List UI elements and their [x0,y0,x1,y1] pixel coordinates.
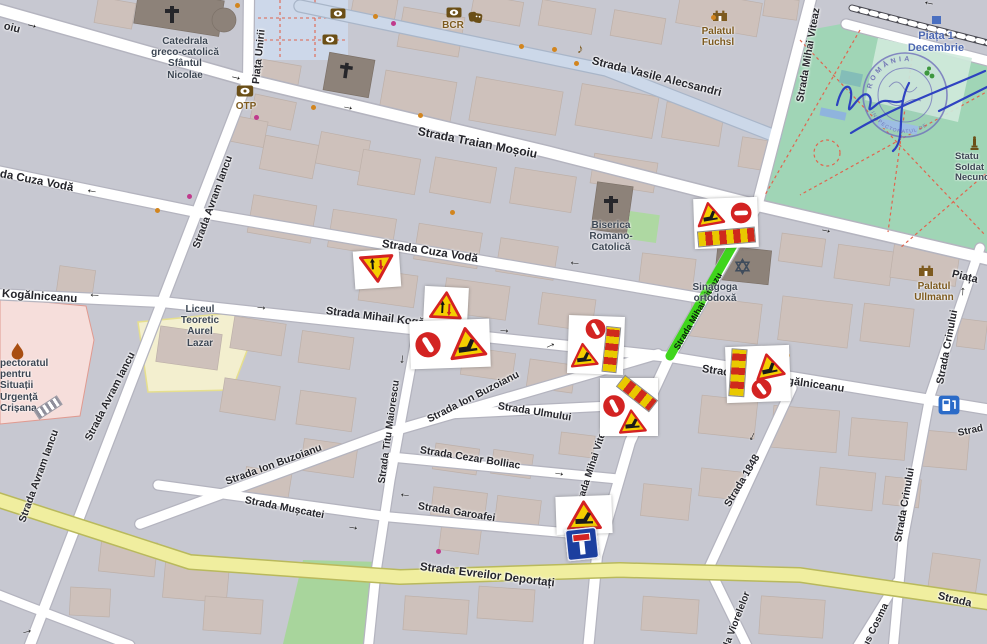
poi-dot [450,210,455,215]
one-way-arrow-icon: → [567,257,581,273]
one-way-arrow-icon: → [497,320,511,336]
poi-dot [436,549,441,554]
poi-dot [574,61,579,66]
landmark-label-otp: OTP [231,101,261,112]
poi-dot [254,115,259,120]
sign-cluster-kogalniceanu-west [423,286,469,324]
one-way-arrow-icon: → [552,463,567,480]
flame-icon [11,343,24,360]
poi-dot [552,47,557,52]
castle-icon [918,263,934,277]
stamp-seal: ROMÂNIA INSPECTORATUL DE [823,45,987,165]
church-cross-icon [609,196,613,213]
fuel-station-icon [938,395,960,415]
stripe-barrier-icon [728,348,747,397]
poi-dot [235,3,240,8]
sign-cluster-cuza-voda [353,248,402,289]
one-way-arrow-icon: → [346,517,361,534]
bank-icon [330,8,346,19]
church-cross-icon [170,6,174,23]
poi-dot [711,15,716,20]
no-entry-sign-icon [411,327,446,362]
dead-end-sign-icon [564,526,599,561]
poi-dot [418,113,423,118]
roadworks-sign-icon [568,340,599,369]
landmark-label-biserica: Biserica Romano- Catolică [580,220,642,254]
landmark-label-palatul-fuchsl: Palatul Fuchsl [688,26,748,48]
landmark-label-sinagoga: Sinagoga ortodoxă [684,282,746,304]
bank-icon [322,34,338,45]
roadworks-sign-icon [617,407,647,435]
one-way-arrow-icon: → [254,297,268,313]
oncoming-priority-sign-icon [357,253,397,286]
poi-dot [187,194,192,199]
poi-dot [373,14,378,19]
bank-icon [236,85,254,97]
poi-dot [311,105,316,110]
one-way-arrow-icon: → [88,290,102,305]
landmark-label-bcr: BCR [438,20,468,31]
roadworks-sign-icon [694,198,726,228]
landmark-label-palatul-ullmann: Palatul Ullmann [902,281,966,303]
bank-icon [446,7,462,18]
star-of-david-icon [734,258,751,275]
no-entry-sign-icon [729,201,753,225]
theatre-masks-icon [468,11,483,24]
sign-cluster-kogalniceanu-center [409,319,491,370]
landmark-label-liceul: Liceul Teoretic Aurel Lazar [172,304,228,349]
two-way-traffic-sign-icon [428,289,464,321]
poi-dot [519,44,524,49]
poi-dot [155,208,160,213]
sign-cluster-kogalniceanu-viteazu [567,315,625,375]
one-way-arrow-icon: → [84,185,99,202]
sign-cluster-kogalniceanu-east [725,345,791,403]
sign-cluster-viteazu-north [693,197,759,249]
poi-dot [391,21,396,26]
landmark-label-catedrala: Catedrala greco-catolică Sfântul Nicolae [126,36,244,81]
stripe-barrier-icon [697,226,756,247]
one-way-arrow-icon: → [397,489,412,506]
sign-cluster-ulmului-viteaz [600,378,658,436]
music-note-icon: ♪ [577,41,584,56]
roadworks-sign-icon [446,323,488,362]
scanned-city-map: oiu Strada Traian Moșoiu Strada Vasile A… [0,0,987,644]
map-marker-blue [932,16,941,24]
